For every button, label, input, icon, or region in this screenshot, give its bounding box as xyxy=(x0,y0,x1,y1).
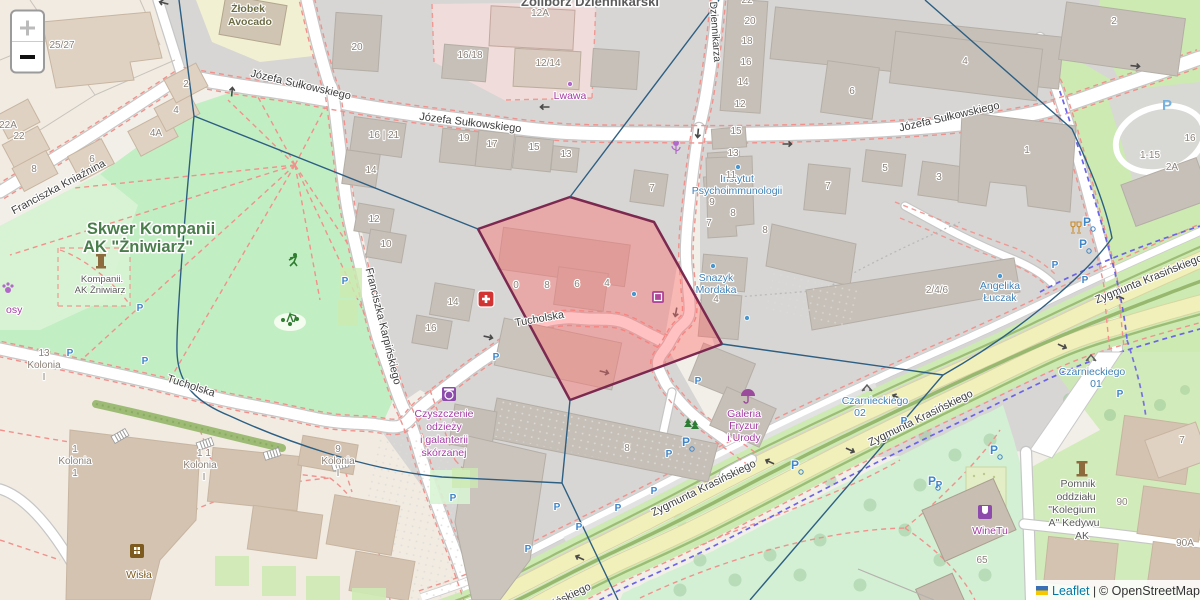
svg-text:P: P xyxy=(67,348,74,359)
svg-text:90: 90 xyxy=(1116,497,1128,508)
svg-text:12: 12 xyxy=(368,214,380,225)
svg-text:|: | xyxy=(1093,584,1096,598)
svg-text:22: 22 xyxy=(13,131,25,142)
svg-text:P: P xyxy=(554,502,561,513)
svg-text:6: 6 xyxy=(89,154,95,165)
svg-text:16: 16 xyxy=(425,323,437,334)
svg-text:P: P xyxy=(493,352,500,363)
svg-text:4A: 4A xyxy=(150,128,163,139)
svg-text:Leaflet: Leaflet xyxy=(1052,584,1090,598)
svg-text:65: 65 xyxy=(976,555,988,566)
svg-text:Wisła: Wisła xyxy=(126,569,152,581)
svg-text:4: 4 xyxy=(604,278,610,289)
svg-text:8: 8 xyxy=(544,280,550,291)
svg-text:2: 2 xyxy=(1111,16,1117,27)
svg-text:8: 8 xyxy=(730,208,736,219)
svg-text:Kolonia: Kolonia xyxy=(321,456,355,467)
svg-text:Psychoimmunologii: Psychoimmunologii xyxy=(692,185,782,197)
svg-text:1-15: 1-15 xyxy=(1140,150,1160,161)
svg-text:osy: osy xyxy=(6,304,23,316)
svg-text:Żłobek: Żłobek xyxy=(231,2,265,15)
svg-text:P: P xyxy=(137,303,144,314)
svg-text:oddziału: oddziału xyxy=(1056,491,1095,503)
svg-text:4: 4 xyxy=(173,105,179,116)
svg-text:Czarnieckiego: Czarnieckiego xyxy=(1059,366,1126,378)
svg-text:1: 1 xyxy=(72,468,78,479)
svg-text:P: P xyxy=(928,474,936,488)
svg-text:P: P xyxy=(1162,97,1172,114)
svg-text:2: 2 xyxy=(183,79,189,90)
svg-text:16: 16 xyxy=(740,57,752,68)
svg-text:8: 8 xyxy=(762,225,768,236)
svg-text:7: 7 xyxy=(706,218,712,229)
svg-text:1 1: 1 1 xyxy=(197,448,211,459)
svg-text:P: P xyxy=(666,449,673,460)
svg-text:18: 18 xyxy=(741,36,753,47)
svg-text:P: P xyxy=(615,503,622,514)
svg-text:13: 13 xyxy=(38,348,50,359)
svg-text:2A: 2A xyxy=(1166,162,1179,173)
svg-text:Kolonia: Kolonia xyxy=(183,460,217,471)
svg-text:22A: 22A xyxy=(0,120,17,131)
svg-text:1: 1 xyxy=(1024,145,1030,156)
svg-text:P: P xyxy=(142,356,149,367)
svg-text:90A: 90A xyxy=(1176,538,1194,549)
svg-text:19: 19 xyxy=(458,133,470,144)
svg-text:12/14: 12/14 xyxy=(535,58,560,69)
svg-text:14: 14 xyxy=(447,297,459,308)
svg-text:02: 02 xyxy=(854,407,866,419)
svg-text:skórzanej: skórzanej xyxy=(422,447,467,459)
svg-text:Galeria: Galeria xyxy=(727,408,761,420)
svg-text:2/4/6: 2/4/6 xyxy=(926,285,949,296)
svg-text:7: 7 xyxy=(649,183,655,194)
svg-text:P: P xyxy=(651,486,658,497)
svg-text:Lwawa: Lwawa xyxy=(554,90,587,102)
svg-text:10: 10 xyxy=(380,239,392,250)
svg-text:Czarnieckiego: Czarnieckiego xyxy=(842,395,909,407)
svg-text:8: 8 xyxy=(31,164,37,175)
svg-text:I: I xyxy=(43,372,46,383)
svg-text:25/27: 25/27 xyxy=(49,40,74,51)
svg-text:P: P xyxy=(1082,275,1089,286)
svg-text:11: 11 xyxy=(726,170,737,181)
svg-text:8: 8 xyxy=(624,443,630,454)
svg-text:i galanterii: i galanterii xyxy=(420,434,468,446)
svg-text:14: 14 xyxy=(365,165,377,176)
svg-text:Fryzur: Fryzur xyxy=(729,420,759,432)
svg-text:P: P xyxy=(901,416,908,427)
svg-text:16: 16 xyxy=(1184,133,1196,144)
svg-text:22: 22 xyxy=(741,0,753,6)
svg-text:P: P xyxy=(990,443,998,457)
svg-text:12: 12 xyxy=(734,99,746,110)
svg-text:P: P xyxy=(450,493,457,504)
svg-text:4: 4 xyxy=(962,56,968,67)
svg-text:"Kolegium: "Kolegium xyxy=(1048,504,1096,516)
svg-text:0: 0 xyxy=(513,280,519,291)
svg-text:© OpenStreetMap: © OpenStreetMap xyxy=(1099,584,1200,598)
svg-text:P: P xyxy=(1083,215,1091,229)
svg-text:Łuczak: Łuczak xyxy=(983,292,1017,304)
svg-text:Czyszczenie: Czyszczenie xyxy=(415,408,474,420)
svg-text:1: 1 xyxy=(72,444,78,455)
svg-text:7: 7 xyxy=(825,181,831,192)
svg-text:7: 7 xyxy=(1179,435,1185,446)
svg-text:Angelika: Angelika xyxy=(980,280,1020,292)
svg-text:9: 9 xyxy=(335,444,341,455)
svg-text:Pomnik: Pomnik xyxy=(1060,478,1096,490)
svg-text:20: 20 xyxy=(744,16,756,27)
svg-text:P: P xyxy=(682,435,690,449)
svg-text:AK Żniwiarz: AK Żniwiarz xyxy=(75,285,126,296)
svg-text:P: P xyxy=(1079,237,1087,251)
svg-text:P: P xyxy=(791,458,799,472)
svg-text:AK: AK xyxy=(1075,530,1089,542)
svg-text:P: P xyxy=(525,544,532,555)
svg-text:01: 01 xyxy=(1090,378,1102,390)
svg-text:17: 17 xyxy=(486,139,498,150)
svg-text:P: P xyxy=(576,522,583,533)
svg-text:A" Kedywu: A" Kedywu xyxy=(1048,517,1099,529)
svg-text:13: 13 xyxy=(560,149,572,160)
svg-text:12A: 12A xyxy=(531,8,549,19)
svg-text:Kolonia: Kolonia xyxy=(58,456,92,467)
svg-text:Snazyk: Snazyk xyxy=(699,272,734,284)
svg-text:3: 3 xyxy=(936,172,942,183)
svg-text:5: 5 xyxy=(882,163,888,174)
svg-text:15: 15 xyxy=(528,142,540,153)
svg-text:odzieży: odzieży xyxy=(426,421,462,433)
svg-text:4: 4 xyxy=(713,294,719,305)
svg-text:P: P xyxy=(1117,389,1124,400)
svg-text:Kompanii.: Kompanii. xyxy=(81,274,123,285)
svg-text:20: 20 xyxy=(351,42,363,53)
svg-text:i Urody: i Urody xyxy=(727,432,761,444)
svg-text:I: I xyxy=(337,468,340,479)
svg-text:Kolonia: Kolonia xyxy=(27,360,61,371)
svg-text:15: 15 xyxy=(730,126,742,137)
svg-text:16/18: 16/18 xyxy=(457,50,482,61)
svg-text:13: 13 xyxy=(727,148,739,159)
svg-text:14: 14 xyxy=(737,77,749,88)
svg-text:P: P xyxy=(1052,260,1059,271)
svg-text:6: 6 xyxy=(849,86,855,97)
svg-text:Avocado: Avocado xyxy=(228,16,272,28)
svg-text:9: 9 xyxy=(709,197,715,208)
svg-text:WineTu: WineTu xyxy=(972,525,1008,537)
svg-text:6: 6 xyxy=(574,279,580,290)
svg-text:AK "Żniwiarz": AK "Żniwiarz" xyxy=(83,238,193,256)
svg-text:16 | 21: 16 | 21 xyxy=(369,130,400,141)
svg-text:P: P xyxy=(695,376,702,387)
svg-text:Skwer Kompanii: Skwer Kompanii xyxy=(87,220,215,238)
svg-text:P: P xyxy=(342,276,349,287)
svg-text:I: I xyxy=(203,472,206,483)
